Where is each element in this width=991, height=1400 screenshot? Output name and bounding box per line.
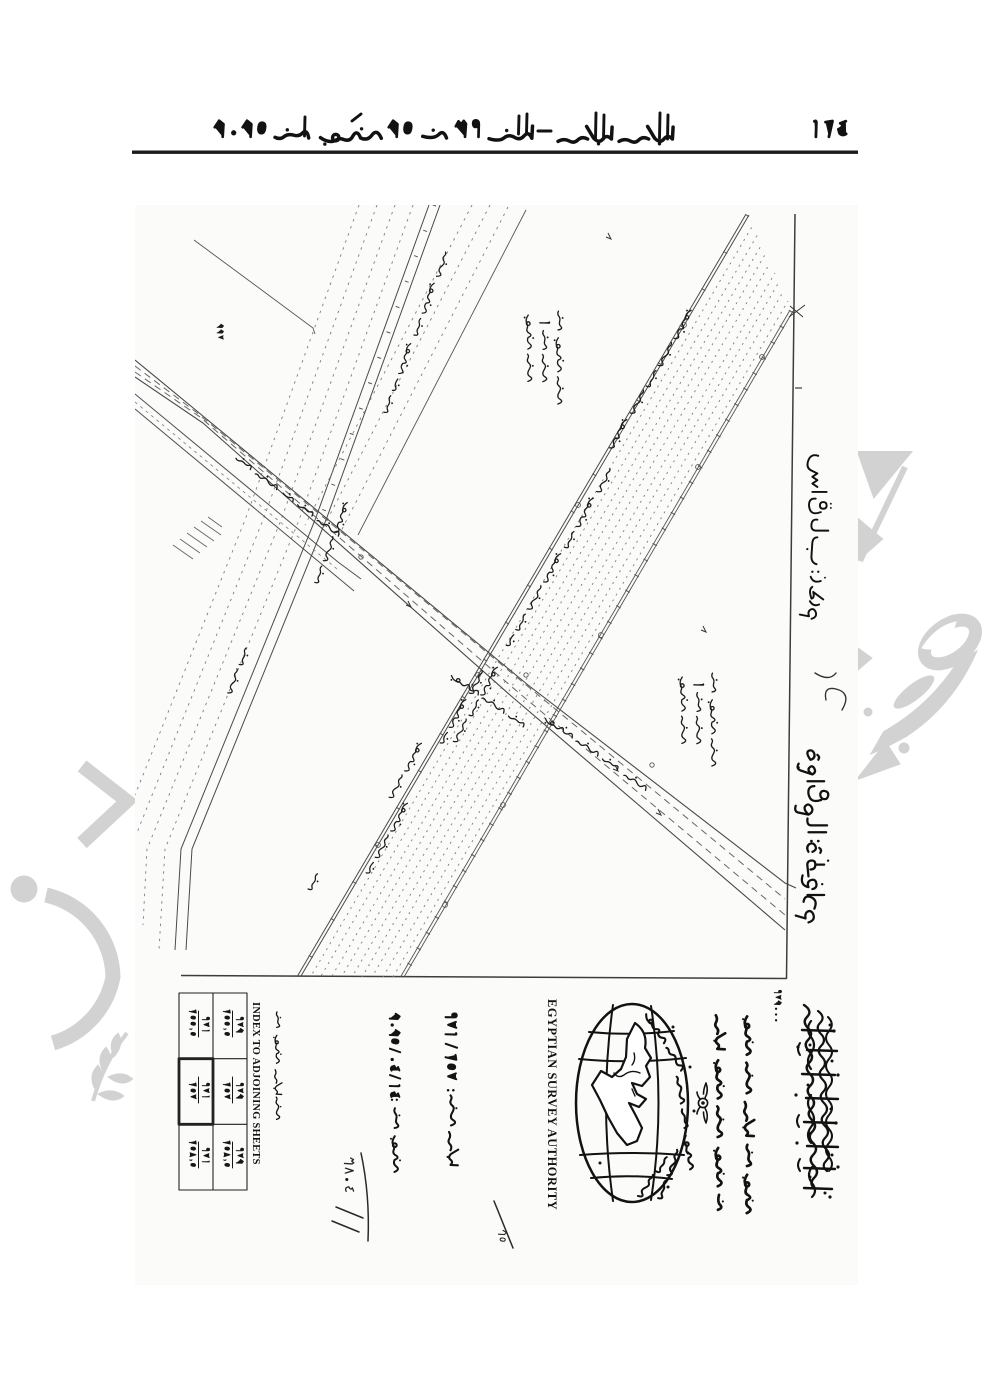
svg-text:INDEX TO ADJOINING SHEETS: INDEX TO ADJOINING SHEETS <box>250 1002 261 1165</box>
svg-text:EGYPTIAN SURVEY AUTHORITY: EGYPTIAN SURVEY AUTHORITY <box>545 999 559 1210</box>
